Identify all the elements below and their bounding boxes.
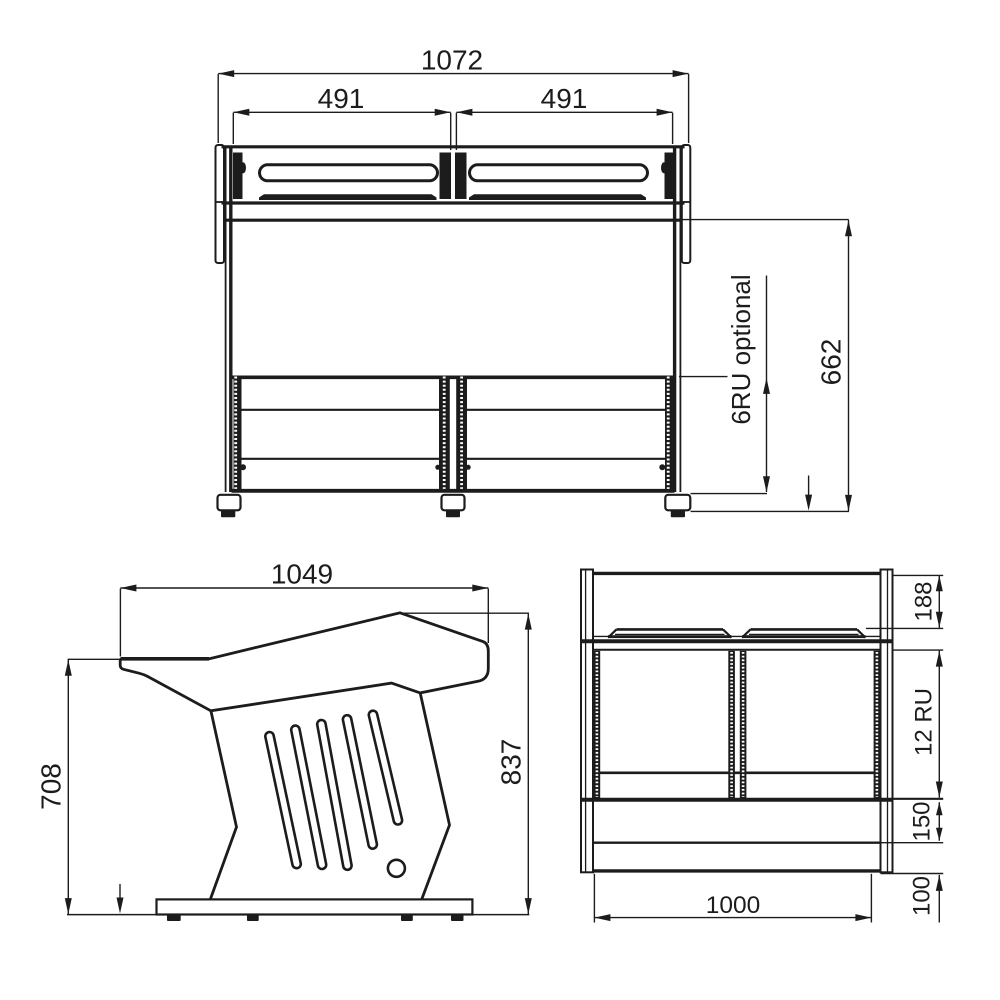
svg-text:662: 662 <box>816 339 847 386</box>
svg-text:188: 188 <box>910 581 937 621</box>
svg-text:708: 708 <box>36 763 67 810</box>
svg-text:1072: 1072 <box>421 45 483 76</box>
svg-text:491: 491 <box>541 83 588 114</box>
svg-text:100: 100 <box>909 876 936 916</box>
svg-text:837: 837 <box>496 739 527 786</box>
svg-text:6RU optional: 6RU optional <box>726 274 756 424</box>
svg-text:491: 491 <box>318 83 365 114</box>
svg-text:1000: 1000 <box>706 892 761 919</box>
svg-text:12 RU: 12 RU <box>910 688 937 756</box>
svg-text:1049: 1049 <box>271 559 333 590</box>
svg-text:150: 150 <box>909 801 936 841</box>
